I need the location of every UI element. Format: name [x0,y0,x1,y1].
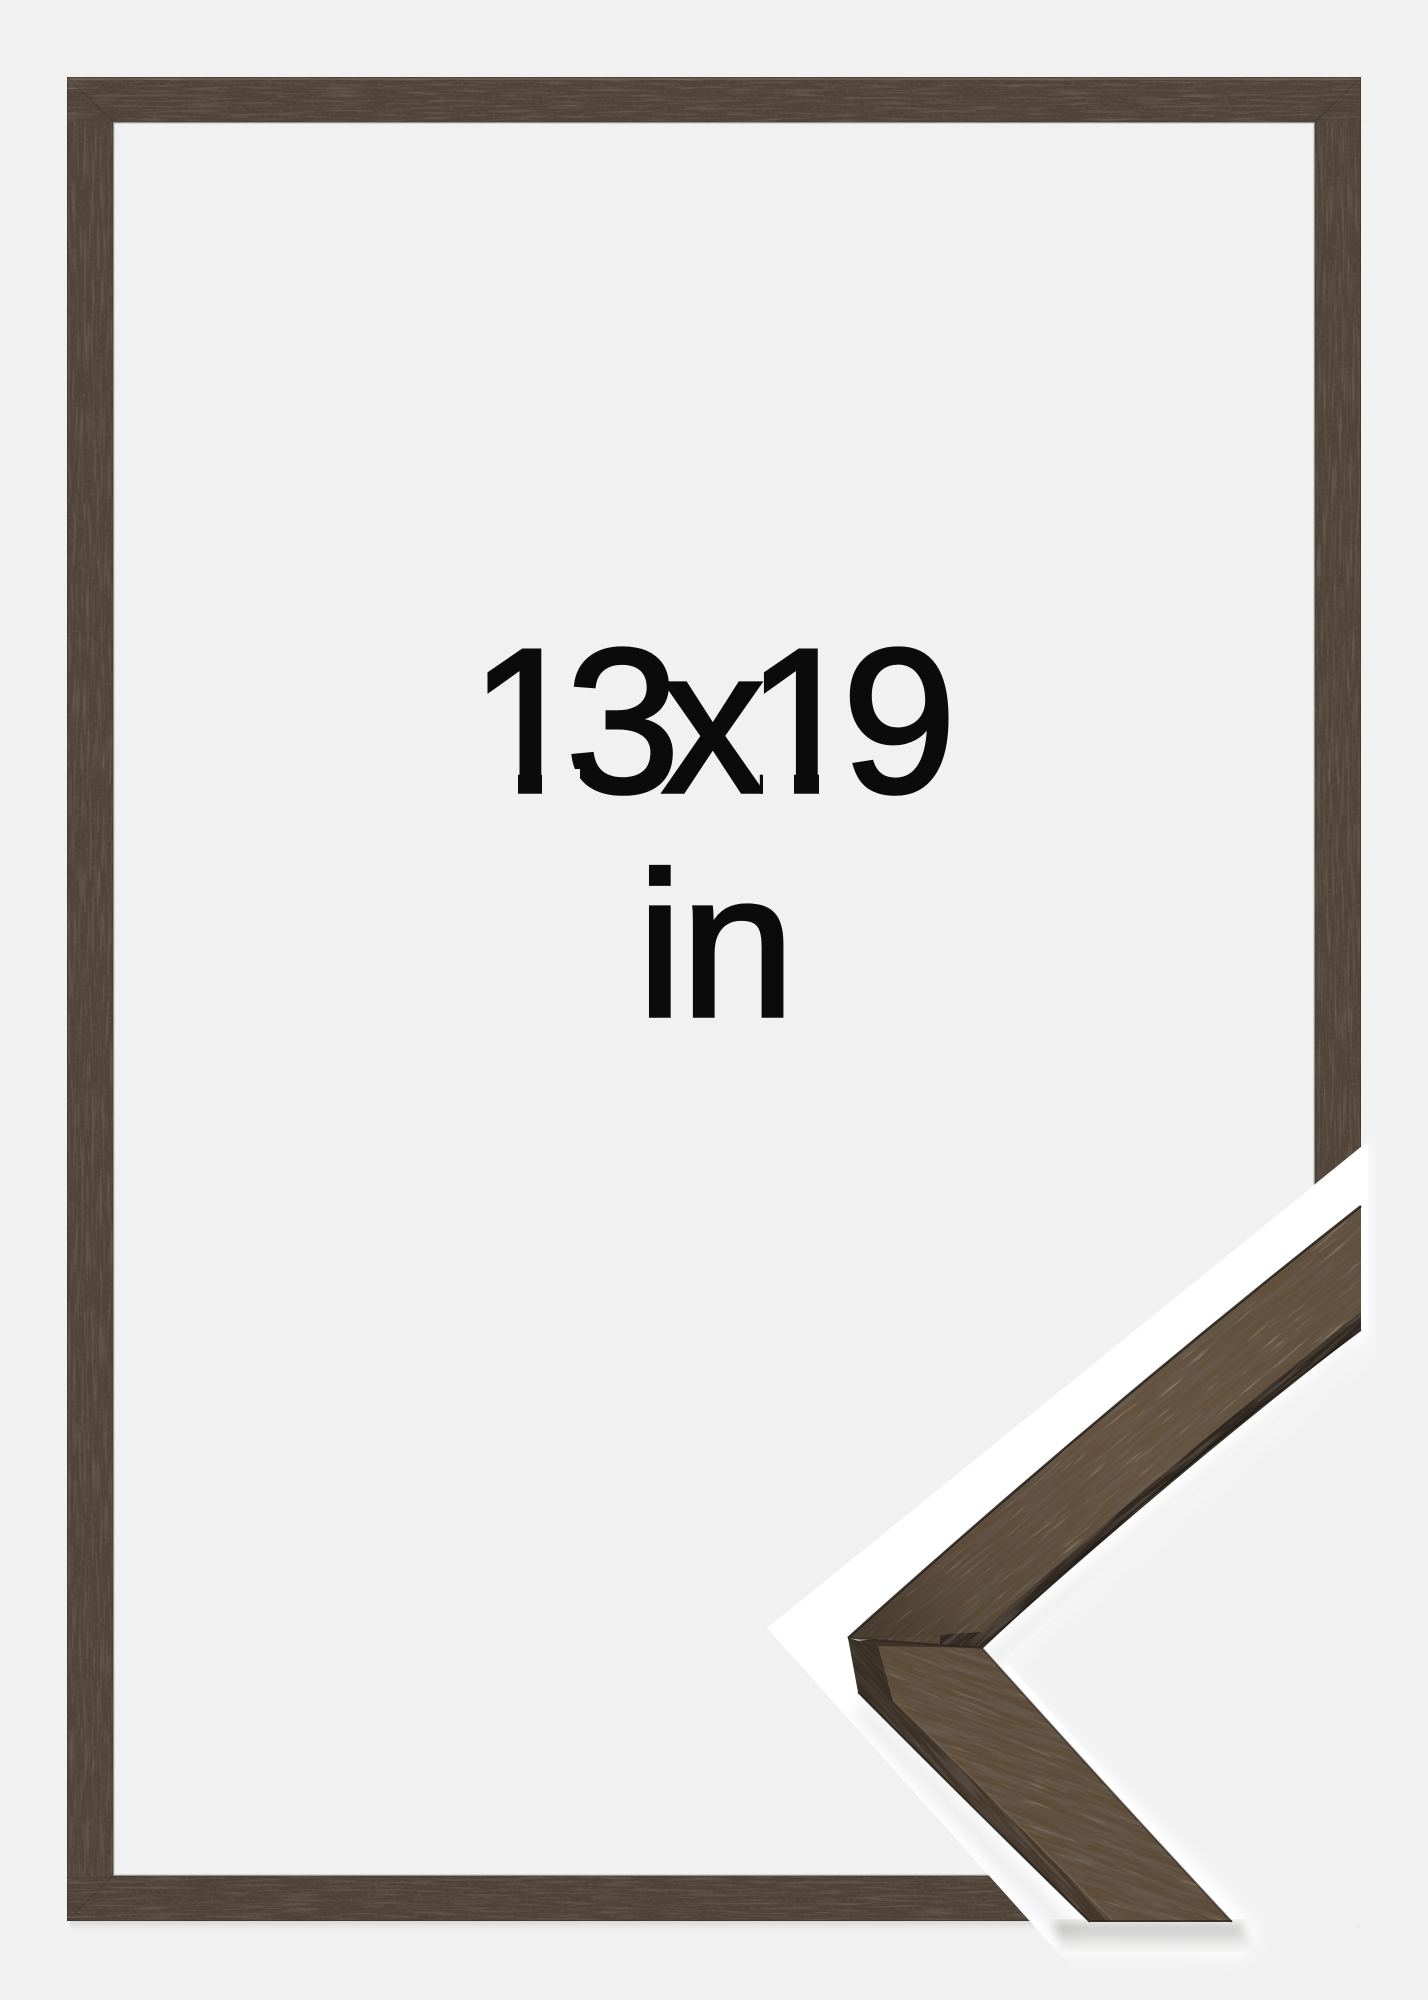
svg-text:13x19: 13x19 [470,606,957,836]
svg-text:in: in [637,830,795,1060]
